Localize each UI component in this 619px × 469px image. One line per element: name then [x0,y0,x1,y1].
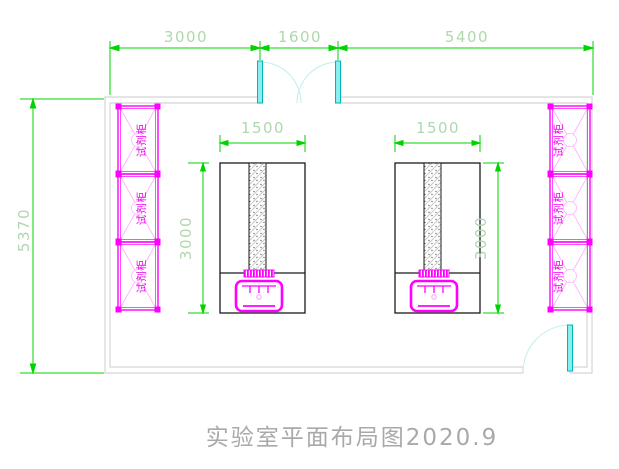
door-swing-arc [297,62,338,103]
cabinet-label: 试剂柜 [135,191,148,226]
bench-hatch-strip [249,163,266,272]
floorplan-page: 3000 1600 5400 5370 试剂柜 试剂柜 试剂柜 试剂柜 试剂柜 … [0,0,619,469]
dim-bench-right-1500: 1500 [416,119,460,137]
bottom-right-door [523,325,573,372]
top-double-door [258,61,341,103]
dim-left-5370: 5370 [15,208,33,252]
drawing-title: 实验室平面布局图2020.9 [206,425,498,451]
cabinet-label: 试剂柜 [552,259,565,294]
dim-bench-left-1500: 1500 [241,119,285,137]
dim-top-3000: 3000 [164,28,208,46]
door-leaf [258,61,263,103]
dimension-bench-right-width [395,135,480,152]
chair-symbol [411,270,457,311]
floorplan-canvas: 3000 1600 5400 5370 试剂柜 试剂柜 试剂柜 试剂柜 试剂柜 … [0,0,619,469]
door-leaf [568,325,573,371]
bench-hatch-strip [424,163,441,272]
chair-symbol [236,270,282,311]
dimension-bench-left-width [220,135,305,152]
cabinet-label: 试剂柜 [552,123,565,158]
dim-top-1600: 1600 [278,28,322,46]
dim-top-5400: 5400 [445,28,489,46]
dim-bench-left-3000: 3000 [177,216,195,260]
door-swing-arc [523,325,570,372]
lab-bench-right [395,163,480,313]
reagent-cabinet-stack-right: 试剂柜 试剂柜 试剂柜 [548,104,593,313]
door-leaf [336,61,341,103]
cabinet-label: 试剂柜 [135,123,148,158]
lab-bench-left [220,163,305,313]
dim-bench-right-3000: 3000 [472,216,490,260]
reagent-cabinet-stack-left: 试剂柜 试剂柜 试剂柜 [116,104,161,313]
cabinet-label: 试剂柜 [552,191,565,226]
cabinet-label: 试剂柜 [135,259,148,294]
door-swing-arc [260,62,301,103]
dimension-top-chain [110,41,593,95]
